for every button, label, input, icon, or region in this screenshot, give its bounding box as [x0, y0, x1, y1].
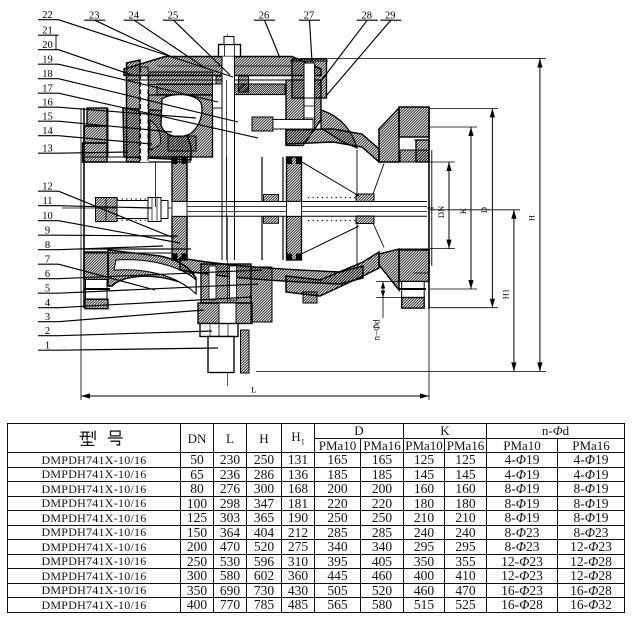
svg-text:L: L — [251, 385, 256, 395]
svg-text:DN: DN — [436, 206, 446, 218]
svg-text:n−Φd: n−Φd — [372, 319, 382, 340]
svg-text:D: D — [479, 207, 489, 213]
svg-text:K: K — [458, 207, 468, 214]
svg-text:H: H — [527, 215, 537, 221]
svg-text:H1: H1 — [501, 289, 511, 299]
